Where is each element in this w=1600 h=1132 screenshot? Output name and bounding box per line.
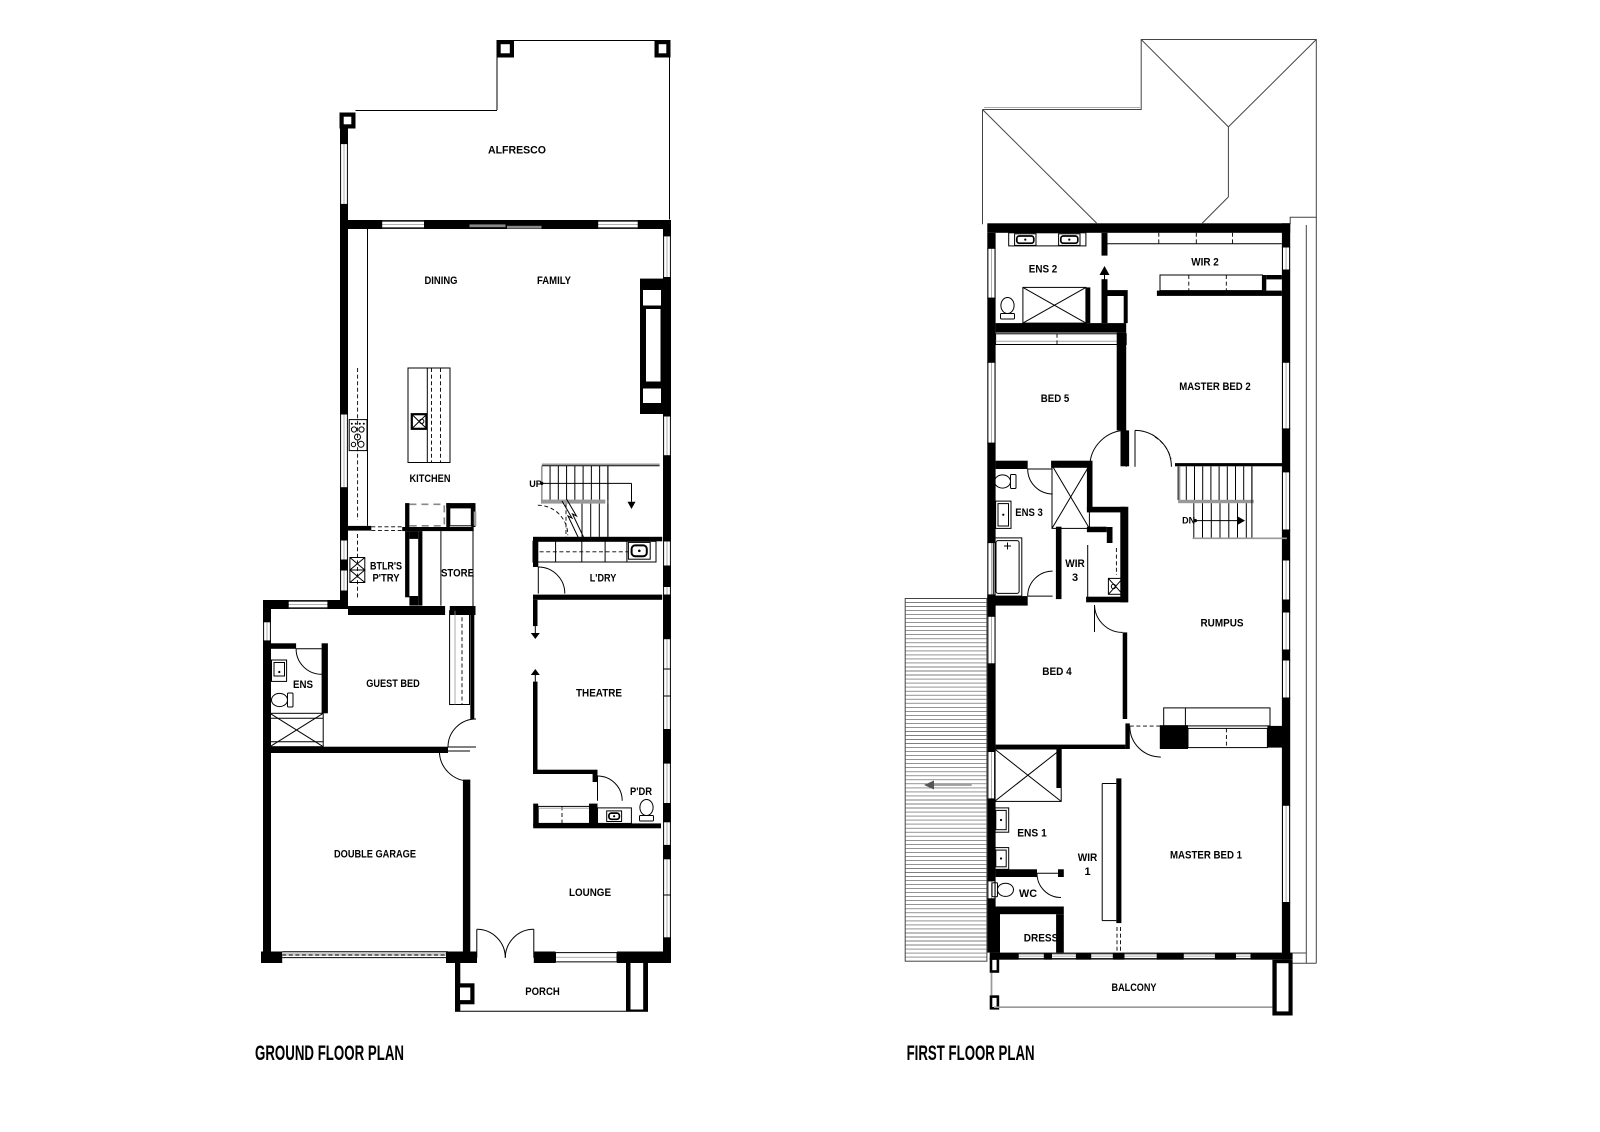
svg-text:WC: WC xyxy=(1019,888,1037,900)
svg-text:DN: DN xyxy=(1182,516,1195,526)
svg-text:BALCONY: BALCONY xyxy=(1112,982,1158,994)
svg-text:WIR: WIR xyxy=(1065,558,1085,570)
svg-text:FIRST FLOOR PLAN: FIRST FLOOR PLAN xyxy=(907,1041,1035,1065)
svg-text:ENS 1: ENS 1 xyxy=(1017,828,1047,840)
svg-text:GUEST BED: GUEST BED xyxy=(366,678,420,690)
svg-text:P'TRY: P'TRY xyxy=(373,573,401,585)
svg-text:GROUND FLOOR PLAN: GROUND FLOOR PLAN xyxy=(255,1041,404,1065)
svg-text:WIR: WIR xyxy=(1078,852,1098,864)
svg-text:MASTER BED 1: MASTER BED 1 xyxy=(1170,850,1242,862)
svg-text:WIR 2: WIR 2 xyxy=(1191,257,1219,269)
svg-text:LOUNGE: LOUNGE xyxy=(569,887,611,899)
svg-text:DOUBLE GARAGE: DOUBLE GARAGE xyxy=(334,849,416,861)
svg-text:KITCHEN: KITCHEN xyxy=(410,473,451,485)
svg-text:MASTER BED 2: MASTER BED 2 xyxy=(1179,381,1251,393)
svg-text:1: 1 xyxy=(1084,866,1090,878)
svg-text:BTLR'S: BTLR'S xyxy=(370,561,402,573)
svg-text:RUMPUS: RUMPUS xyxy=(1201,618,1244,630)
svg-text:ENS 3: ENS 3 xyxy=(1015,507,1043,519)
svg-text:DINING: DINING xyxy=(425,275,458,287)
svg-text:FAMILY: FAMILY xyxy=(537,275,572,287)
svg-text:THEATRE: THEATRE xyxy=(576,688,622,700)
svg-text:3: 3 xyxy=(1072,572,1078,584)
svg-text:ENS 2: ENS 2 xyxy=(1029,264,1058,276)
svg-text:ENS: ENS xyxy=(293,679,313,691)
svg-text:P'DR: P'DR xyxy=(630,786,652,798)
svg-text:ALFRESCO: ALFRESCO xyxy=(488,145,546,157)
svg-text:DRESS: DRESS xyxy=(1024,933,1059,945)
svg-text:L'DRY: L'DRY xyxy=(590,573,617,585)
svg-text:UP: UP xyxy=(529,479,542,489)
svg-text:PORCH: PORCH xyxy=(525,986,560,998)
svg-text:STORE: STORE xyxy=(441,568,474,580)
svg-text:BED 4: BED 4 xyxy=(1042,666,1072,678)
svg-text:BED 5: BED 5 xyxy=(1041,393,1070,405)
